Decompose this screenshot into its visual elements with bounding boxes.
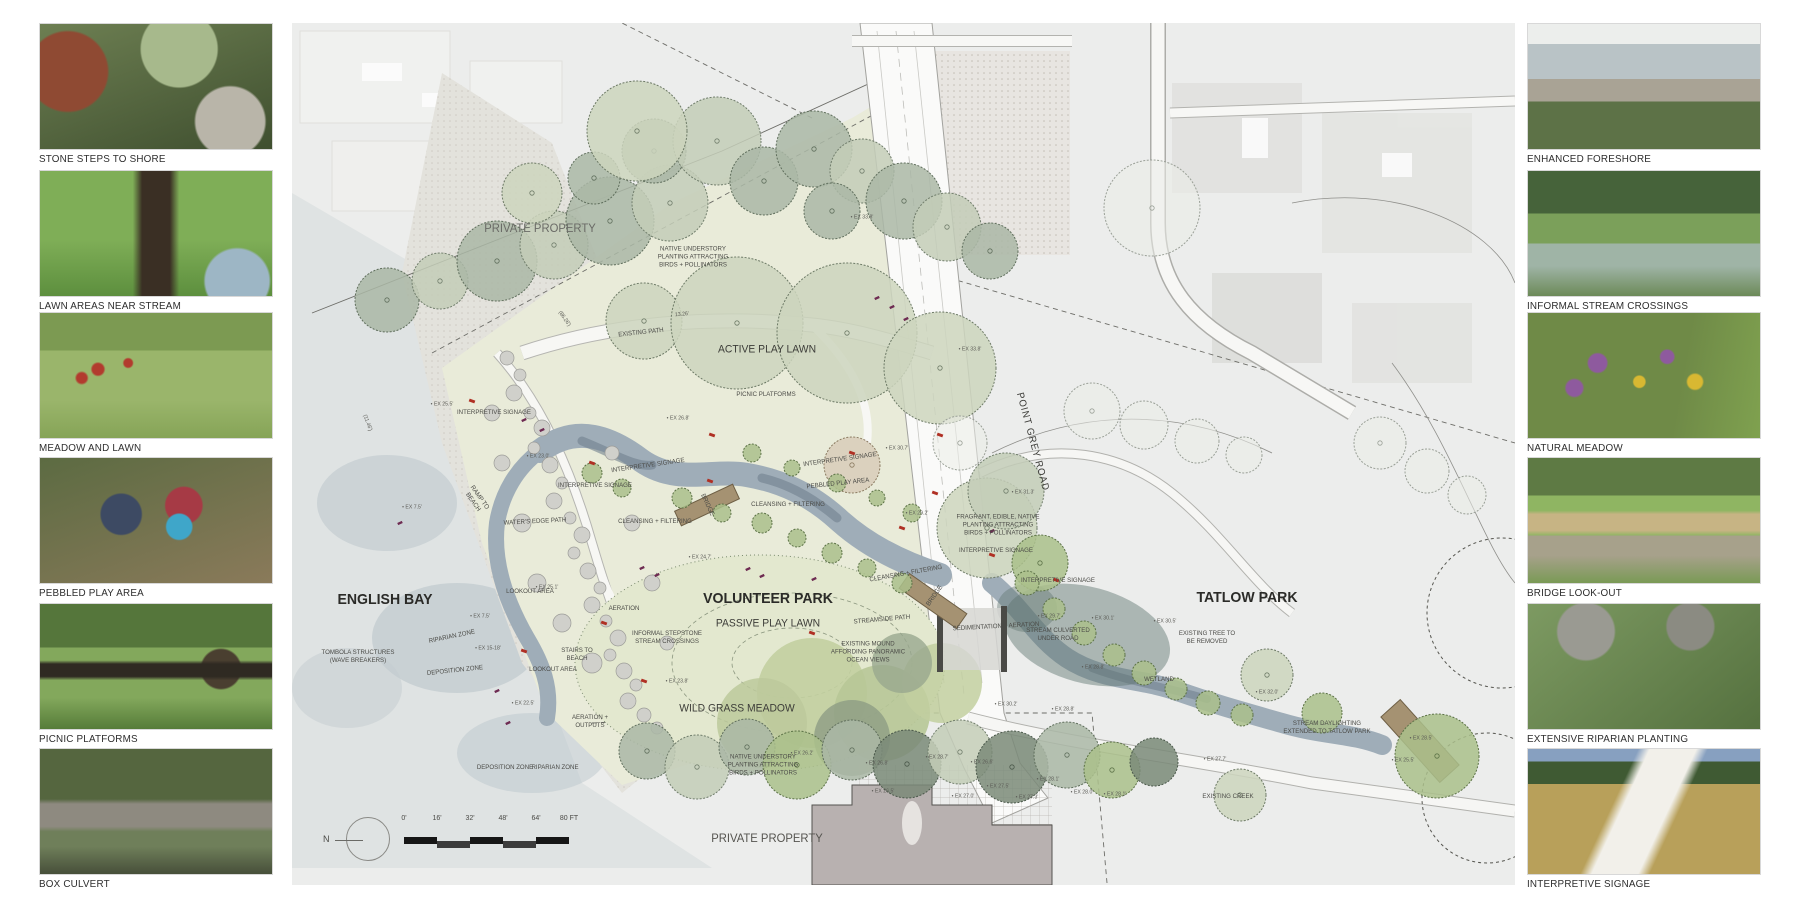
tree-canopy [355, 268, 419, 332]
shore-rock [580, 563, 596, 579]
shore-rock [556, 477, 568, 489]
shore-rock [528, 574, 546, 592]
reference-photo [39, 170, 273, 297]
shore-rock [494, 455, 510, 471]
tree-canopy [1072, 621, 1096, 645]
scale-bar-segment [404, 837, 437, 844]
photo-caption: INTERPRETIVE SIGNAGE [1527, 878, 1747, 890]
photo-caption: STONE STEPS TO SHORE [39, 153, 259, 165]
tree-canopy [1395, 714, 1479, 798]
tree-canopy [962, 223, 1018, 279]
scale-tick-label: 16' [432, 815, 441, 822]
shore-rock [528, 442, 540, 454]
reference-photo-figure: PEBBLED PLAY AREA [39, 457, 273, 599]
tree-canopy [1103, 644, 1125, 666]
tree-canopy [587, 81, 687, 181]
reference-photo [39, 748, 273, 875]
shore-rock [506, 385, 522, 401]
tree-canopy [884, 312, 996, 424]
photo-caption: INFORMAL STREAM CROSSINGS [1527, 300, 1747, 312]
tree-canopy [502, 163, 562, 223]
reference-photo-figure: MEADOW AND LAWN [39, 312, 273, 454]
reference-photo [39, 457, 273, 584]
shore-rock [542, 457, 558, 473]
left-photo-column: STONE STEPS TO SHORELAWN AREAS NEAR STRE… [39, 0, 273, 920]
scale-bar-segment [470, 837, 503, 844]
shore-rock [564, 512, 576, 524]
tree-canopy [1214, 769, 1266, 821]
tree-canopy [828, 474, 846, 492]
reference-photo-figure: BRIDGE LOOK-OUT [1527, 457, 1761, 599]
tree-canopy [743, 444, 761, 462]
tree-canopy [1130, 738, 1178, 786]
tree-canopy [892, 573, 912, 593]
scale-bar-segment [437, 841, 470, 848]
scale-tick-label: 0' [401, 815, 406, 822]
reference-photo [1527, 603, 1761, 730]
landscape-masterplan-board: { "board_title": "Volunteer Park + Tatlo… [0, 0, 1800, 920]
shore-rock [620, 693, 636, 709]
photo-caption: MEADOW AND LAWN [39, 442, 259, 454]
shore-rock [524, 407, 536, 419]
north-arrow-icon: N [346, 817, 390, 861]
shore-rock [574, 527, 590, 543]
shore-rock [546, 493, 562, 509]
scale-bar: N 0'16'32'48'64'80 FT [334, 815, 634, 865]
tree-canopy [1231, 704, 1253, 726]
shore-rock [582, 653, 602, 673]
tree-canopy [1043, 598, 1065, 620]
photo-caption: PICNIC PLATFORMS [39, 733, 259, 745]
photo-caption: LAWN AREAS NEAR STREAM [39, 300, 259, 312]
tree-canopy [1015, 571, 1039, 595]
scale-bar-segment [503, 841, 536, 848]
photo-caption: PEBBLED PLAY AREA [39, 587, 259, 599]
shore-rock [553, 614, 571, 632]
shore-rock [500, 351, 514, 365]
reference-photo-figure: LAWN AREAS NEAR STREAM [39, 170, 273, 312]
reference-photo [1527, 23, 1761, 150]
shore-rock [513, 514, 531, 532]
shore-rock [616, 663, 632, 679]
shore-rock [584, 597, 600, 613]
reference-photo [1527, 170, 1761, 297]
tree-canopy [606, 283, 682, 359]
photo-caption: NATURAL MEADOW [1527, 442, 1747, 454]
tree-canopy [1175, 419, 1219, 463]
reference-photo-figure: INFORMAL STREAM CROSSINGS [1527, 170, 1761, 312]
reference-photo-figure: STONE STEPS TO SHORE [39, 23, 273, 165]
tree-canopy [582, 463, 602, 483]
tree-canopy [752, 513, 772, 533]
scale-tick-label: 32' [465, 815, 474, 822]
tree-canopy [1448, 476, 1486, 514]
shore-rock [604, 649, 616, 661]
reference-photo [1527, 457, 1761, 584]
shore-rock [644, 575, 660, 591]
tree-canopy [822, 543, 842, 563]
tree-canopy [784, 460, 800, 476]
site-plan: ENGLISH BAYVOLUNTEER PARKTATLOW PARKPRIV… [292, 23, 1515, 885]
shore-rock [594, 582, 606, 594]
photo-caption: BRIDGE LOOK-OUT [1527, 587, 1747, 599]
tree-canopy [1196, 691, 1220, 715]
tree-canopy [1120, 401, 1168, 449]
tree-canopy [1241, 649, 1293, 701]
tree-canopy [1302, 693, 1342, 733]
shore-rock [605, 446, 619, 460]
shore-rock [630, 679, 642, 691]
tree-canopy [822, 720, 882, 780]
reference-photo [39, 23, 273, 150]
shore-rock [660, 636, 674, 650]
reference-photo-figure: PICNIC PLATFORMS [39, 603, 273, 745]
tree-canopy [763, 731, 831, 799]
shore-rock [534, 420, 550, 436]
reference-photo-figure: BOX CULVERT [39, 748, 273, 890]
scale-tick-label: 48' [498, 815, 507, 822]
tree-canopy [1104, 160, 1200, 256]
shore-rock [514, 369, 526, 381]
reference-photo [39, 312, 273, 439]
reference-photo-figure: EXTENSIVE RIPARIAN PLANTING [1527, 603, 1761, 745]
reference-photo-figure: ENHANCED FORESHORE [1527, 23, 1761, 165]
photo-caption: EXTENSIVE RIPARIAN PLANTING [1527, 733, 1747, 745]
photo-caption: BOX CULVERT [39, 878, 259, 890]
tree-canopy [903, 504, 921, 522]
tree-canopy [713, 504, 731, 522]
tree-canopy [788, 529, 806, 547]
tree-canopy [858, 559, 876, 577]
tree-canopy [804, 183, 860, 239]
reference-photo [1527, 312, 1761, 439]
tree-canopy [1064, 383, 1120, 439]
scale-bar-segment [536, 837, 569, 844]
north-label: N [323, 834, 330, 844]
tree-canopy [933, 416, 987, 470]
scale-tick-label: 80 FT [560, 815, 578, 822]
tree-canopy [1165, 678, 1187, 700]
reference-photo-figure: INTERPRETIVE SIGNAGE [1527, 748, 1761, 890]
tree-canopy [1405, 449, 1449, 493]
tree-canopy [1132, 661, 1156, 685]
reference-photo [1527, 748, 1761, 875]
reference-photo-figure: NATURAL MEADOW [1527, 312, 1761, 454]
shore-rock [568, 547, 580, 559]
shore-rock [610, 630, 626, 646]
tree-canopy [968, 453, 1044, 529]
tree-canopy [613, 479, 631, 497]
shore-rock [637, 708, 651, 722]
right-photo-column: ENHANCED FORESHOREINFORMAL STREAM CROSSI… [1527, 0, 1761, 920]
tree-canopy [1226, 437, 1262, 473]
shore-rock [624, 515, 640, 531]
scale-tick-label: 64' [531, 815, 540, 822]
shore-rock [484, 405, 500, 421]
tree-canopy [672, 488, 692, 508]
reference-photo [39, 603, 273, 730]
photo-caption: ENHANCED FORESHORE [1527, 153, 1747, 165]
site-plan-drawing [292, 23, 1515, 885]
tree-canopy [869, 490, 885, 506]
tree-canopy [1354, 417, 1406, 469]
